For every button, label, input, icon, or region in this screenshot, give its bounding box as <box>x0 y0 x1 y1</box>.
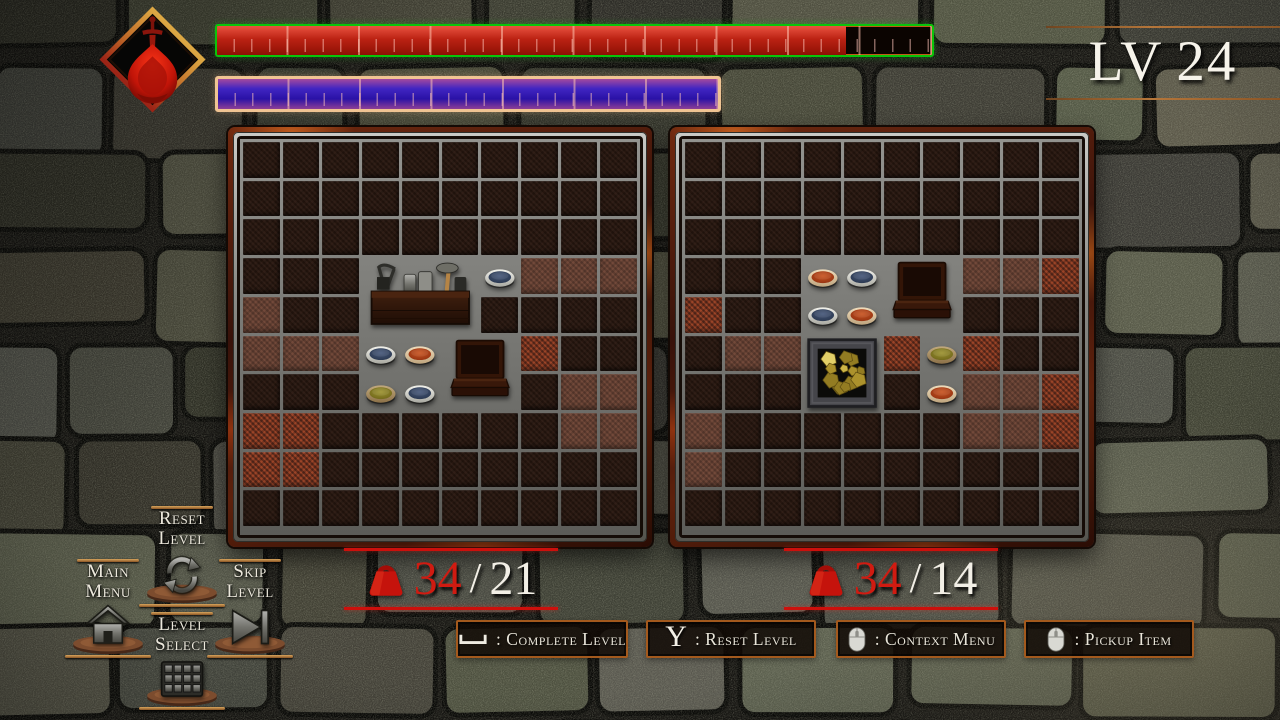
grid-cell[interactable] <box>283 374 320 410</box>
grid-cell[interactable] <box>804 142 841 178</box>
grid-cell[interactable] <box>685 142 722 178</box>
grid-cell[interactable] <box>1003 374 1040 410</box>
grid-cell[interactable] <box>923 452 960 488</box>
grid-cell[interactable] <box>725 181 762 217</box>
grid-cell[interactable] <box>844 142 881 178</box>
spacebar-icon <box>458 631 488 647</box>
grid-cell[interactable] <box>283 181 320 217</box>
item-chest[interactable] <box>442 336 518 410</box>
grid-cell[interactable] <box>283 258 320 294</box>
grid-cell[interactable] <box>481 297 518 333</box>
skip-level-label: Level <box>226 582 273 602</box>
grid-cell[interactable] <box>685 219 722 255</box>
grid-cell[interactable] <box>1003 452 1040 488</box>
grid-cell[interactable] <box>804 181 841 217</box>
grid-cell[interactable] <box>362 490 399 526</box>
grid-cell[interactable] <box>600 142 637 178</box>
health-bar <box>215 24 934 57</box>
grid-cell[interactable] <box>442 181 479 217</box>
level-select-button[interactable]: Level Select <box>130 612 234 710</box>
grid-cell[interactable] <box>804 219 841 255</box>
grid-cell[interactable] <box>521 297 558 333</box>
grid-cell[interactable] <box>521 452 558 488</box>
divider-line <box>784 548 998 551</box>
grid-cell[interactable] <box>283 413 320 449</box>
grid-cell[interactable] <box>521 181 558 217</box>
grid-cell[interactable] <box>600 413 637 449</box>
grid-cell[interactable] <box>963 297 1000 333</box>
grid-cell[interactable] <box>1042 258 1079 294</box>
grid-cell[interactable] <box>600 219 637 255</box>
grid-cell[interactable] <box>963 258 1000 294</box>
grid-cell[interactable] <box>561 374 598 410</box>
grid-cell[interactable] <box>521 413 558 449</box>
grid-cell[interactable] <box>1042 452 1079 488</box>
grid-cell[interactable] <box>923 142 960 178</box>
grid-cell[interactable] <box>725 258 762 294</box>
grid-cell[interactable] <box>402 490 439 526</box>
grid-cell[interactable] <box>402 452 439 488</box>
grid-cell[interactable] <box>1003 490 1040 526</box>
grid-cell[interactable] <box>561 490 598 526</box>
grid-cell[interactable] <box>1003 258 1040 294</box>
grid-cell[interactable] <box>362 181 399 217</box>
xp-bar <box>215 76 721 112</box>
grid-cell[interactable] <box>600 336 637 372</box>
grid-cell[interactable] <box>283 219 320 255</box>
grid-cell[interactable] <box>600 374 637 410</box>
grid-cell[interactable] <box>764 219 801 255</box>
grid-cell[interactable] <box>804 452 841 488</box>
weight-separator: / <box>910 557 922 601</box>
grid-cell[interactable] <box>884 374 921 410</box>
grid-cell[interactable] <box>923 413 960 449</box>
game-screen: LV24 <box>0 0 1280 720</box>
grid-cell[interactable] <box>844 219 881 255</box>
grid-cell[interactable] <box>481 219 518 255</box>
grid-cell[interactable] <box>243 336 280 372</box>
item-bowl-blue[interactable] <box>481 258 518 294</box>
grid-cell[interactable] <box>963 490 1000 526</box>
grid-cell[interactable] <box>600 258 637 294</box>
mouse-icon <box>1046 626 1066 653</box>
grid-cell[interactable] <box>884 142 921 178</box>
grid-cell[interactable] <box>561 219 598 255</box>
hint-label: : Complete Level <box>496 629 626 650</box>
item-bowl-red[interactable] <box>804 258 841 294</box>
grid-cell[interactable] <box>402 219 439 255</box>
grid-cell[interactable] <box>600 490 637 526</box>
puzzle-board-left <box>228 127 652 547</box>
grid-cell[interactable] <box>243 374 280 410</box>
grid-cell[interactable] <box>884 181 921 217</box>
grid-cell[interactable] <box>322 258 359 294</box>
grid-cell[interactable] <box>685 336 722 372</box>
grid-cell[interactable] <box>521 336 558 372</box>
grid-cell[interactable] <box>561 258 598 294</box>
grid-cell[interactable] <box>1042 413 1079 449</box>
grid-cell[interactable] <box>1003 297 1040 333</box>
grid-cell[interactable] <box>764 142 801 178</box>
grid-cell[interactable] <box>764 413 801 449</box>
grid-cell[interactable] <box>283 336 320 372</box>
grid-cell[interactable] <box>322 181 359 217</box>
grid-cell[interactable] <box>442 452 479 488</box>
grid-cell[interactable] <box>963 142 1000 178</box>
grid-cell[interactable] <box>322 297 359 333</box>
grid-cell[interactable] <box>764 297 801 333</box>
grid-cell[interactable] <box>685 413 722 449</box>
skip-icon <box>229 608 271 646</box>
grid-cell[interactable] <box>1042 297 1079 333</box>
mouse-icon <box>847 626 867 653</box>
level-select-label: Select <box>155 635 209 655</box>
grid-cell[interactable] <box>1003 336 1040 372</box>
grid-cell[interactable] <box>1042 490 1079 526</box>
weight-capacity: 21 <box>489 555 537 603</box>
item-bowl-olive[interactable] <box>923 336 960 372</box>
grid-cell[interactable] <box>804 490 841 526</box>
grid-cell[interactable] <box>402 413 439 449</box>
hint-reset-level[interactable]: Y : Reset Level <box>646 620 816 658</box>
grid-cell[interactable] <box>481 490 518 526</box>
grid-cell[interactable] <box>764 490 801 526</box>
grid-cell[interactable] <box>481 181 518 217</box>
grid-cell[interactable] <box>963 336 1000 372</box>
grid-cell[interactable] <box>283 297 320 333</box>
grid-cell[interactable] <box>322 142 359 178</box>
grid-cell[interactable] <box>884 336 921 372</box>
grid-cell[interactable] <box>243 413 280 449</box>
item-toolbox[interactable] <box>362 258 478 332</box>
grid-cell[interactable] <box>685 490 722 526</box>
grid-icon <box>160 660 204 698</box>
grid-cell[interactable] <box>600 452 637 488</box>
grid-cell[interactable] <box>442 142 479 178</box>
grid-cell[interactable] <box>481 452 518 488</box>
grid-cell[interactable] <box>884 490 921 526</box>
grid-cell[interactable] <box>725 297 762 333</box>
hint-label: : Reset Level <box>695 629 797 650</box>
grid-cell[interactable] <box>561 142 598 178</box>
grid-cell[interactable] <box>243 258 280 294</box>
grid-cell[interactable] <box>243 452 280 488</box>
grid-cell[interactable] <box>764 181 801 217</box>
grid-cell[interactable] <box>481 142 518 178</box>
grid-cell[interactable] <box>1042 142 1079 178</box>
divider-line <box>139 707 225 710</box>
grid-cell[interactable] <box>362 219 399 255</box>
grid-cell[interactable] <box>362 452 399 488</box>
grid-cell[interactable] <box>481 413 518 449</box>
weight-current: 34 <box>854 555 902 603</box>
grid-cell[interactable] <box>764 374 801 410</box>
reset-level-label: Level <box>158 529 205 549</box>
grid-cell[interactable] <box>725 374 762 410</box>
grid-cell[interactable] <box>283 142 320 178</box>
grid-cell[interactable] <box>561 336 598 372</box>
level-value: 24 <box>1176 30 1237 93</box>
grid-cell[interactable] <box>685 452 722 488</box>
grid-cell[interactable] <box>963 181 1000 217</box>
item-chest[interactable] <box>884 258 960 332</box>
grid-cell[interactable] <box>963 219 1000 255</box>
grid-cell[interactable] <box>685 258 722 294</box>
weight-counter-left: 34 / 21 <box>344 548 558 610</box>
board-grid <box>682 139 1082 535</box>
item-bowl-blue[interactable] <box>402 374 439 410</box>
grid-cell[interactable] <box>561 452 598 488</box>
grid-cell[interactable] <box>1042 181 1079 217</box>
level-label: LV <box>1089 30 1164 93</box>
level-select-label: Level <box>155 615 209 635</box>
grid-cell[interactable] <box>923 181 960 217</box>
grid-cell[interactable] <box>243 142 280 178</box>
grid-cell[interactable] <box>402 142 439 178</box>
grid-cell[interactable] <box>804 413 841 449</box>
main-menu-label: Main <box>85 562 131 582</box>
grid-cell[interactable] <box>764 258 801 294</box>
grid-cell[interactable] <box>362 413 399 449</box>
item-bowl-blue[interactable] <box>844 258 881 294</box>
item-bowl-red[interactable] <box>844 297 881 333</box>
hint-pickup-item[interactable]: : Pickup Item <box>1024 620 1194 658</box>
divider-line <box>1046 26 1280 28</box>
grid-cell[interactable] <box>322 413 359 449</box>
item-bowl-red[interactable] <box>923 374 960 410</box>
grid-cell[interactable] <box>521 219 558 255</box>
grid-cell[interactable] <box>685 374 722 410</box>
skip-level-label: Skip <box>226 562 273 582</box>
grid-cell[interactable] <box>884 413 921 449</box>
hint-label: : Context Menu <box>875 629 996 650</box>
grid-cell[interactable] <box>243 219 280 255</box>
grid-cell[interactable] <box>725 413 762 449</box>
weight-separator: / <box>470 557 482 601</box>
main-menu-label: Menu <box>85 582 131 602</box>
weight-counter-right: 34 / 14 <box>784 548 998 610</box>
grid-cell[interactable] <box>844 452 881 488</box>
puzzle-board-right <box>670 127 1094 547</box>
grid-cell[interactable] <box>844 413 881 449</box>
grid-cell[interactable] <box>725 142 762 178</box>
board-grid <box>240 139 640 535</box>
divider-line <box>344 548 558 551</box>
grid-cell[interactable] <box>322 374 359 410</box>
grid-cell[interactable] <box>521 374 558 410</box>
grid-cell[interactable] <box>884 452 921 488</box>
grid-cell[interactable] <box>725 336 762 372</box>
grid-cell[interactable] <box>561 181 598 217</box>
weight-icon <box>365 558 407 600</box>
weight-icon <box>805 558 847 600</box>
grid-cell[interactable] <box>844 181 881 217</box>
health-bar-major-ticks <box>217 26 932 55</box>
xp-bar-major-ticks <box>218 79 718 109</box>
grid-cell[interactable] <box>442 219 479 255</box>
grid-cell[interactable] <box>1003 142 1040 178</box>
grid-cell[interactable] <box>685 181 722 217</box>
item-bowl-blue[interactable] <box>804 297 841 333</box>
grid-cell[interactable] <box>322 490 359 526</box>
weight-capacity: 14 <box>929 555 977 603</box>
item-bowl-olive[interactable] <box>362 374 399 410</box>
home-icon <box>85 604 131 646</box>
grid-cell[interactable] <box>561 297 598 333</box>
y-key: Y <box>665 620 687 654</box>
item-bowl-red[interactable] <box>402 336 439 372</box>
grid-cell[interactable] <box>725 452 762 488</box>
item-ore-crate[interactable] <box>804 336 880 410</box>
grid-cell[interactable] <box>362 142 399 178</box>
grid-cell[interactable] <box>243 181 280 217</box>
grid-cell[interactable] <box>1003 219 1040 255</box>
grid-cell[interactable] <box>322 452 359 488</box>
grid-cell[interactable] <box>283 490 320 526</box>
grid-cell[interactable] <box>442 413 479 449</box>
grid-cell[interactable] <box>963 413 1000 449</box>
grid-cell[interactable] <box>1003 181 1040 217</box>
grid-cell[interactable] <box>844 490 881 526</box>
grid-cell[interactable] <box>600 297 637 333</box>
grid-cell[interactable] <box>764 336 801 372</box>
hint-context-menu[interactable]: : Context Menu <box>836 620 1006 658</box>
item-bowl-blue[interactable] <box>362 336 399 372</box>
grid-cell[interactable] <box>243 490 280 526</box>
hint-label: : Pickup Item <box>1074 629 1171 650</box>
grid-cell[interactable] <box>283 452 320 488</box>
grid-cell[interactable] <box>685 297 722 333</box>
grid-cell[interactable] <box>1042 374 1079 410</box>
weight-current: 34 <box>414 555 462 603</box>
bonfire-sword-emblem <box>96 3 209 116</box>
grid-cell[interactable] <box>764 452 801 488</box>
grid-cell[interactable] <box>725 490 762 526</box>
grid-cell[interactable] <box>521 490 558 526</box>
grid-cell[interactable] <box>322 219 359 255</box>
grid-cell[interactable] <box>884 219 921 255</box>
divider-line <box>1046 98 1280 100</box>
reset-icon <box>162 555 202 595</box>
grid-cell[interactable] <box>322 336 359 372</box>
divider-line <box>784 607 998 610</box>
grid-cell[interactable] <box>600 181 637 217</box>
grid-cell[interactable] <box>521 258 558 294</box>
grid-cell[interactable] <box>1003 413 1040 449</box>
grid-cell[interactable] <box>1042 219 1079 255</box>
reset-level-label: Reset <box>158 509 205 529</box>
grid-cell[interactable] <box>963 374 1000 410</box>
grid-cell[interactable] <box>923 490 960 526</box>
grid-cell[interactable] <box>243 297 280 333</box>
grid-cell[interactable] <box>561 413 598 449</box>
divider-line <box>344 607 558 610</box>
grid-cell[interactable] <box>923 219 960 255</box>
grid-cell[interactable] <box>725 219 762 255</box>
grid-cell[interactable] <box>963 452 1000 488</box>
hint-complete-level[interactable]: : Complete Level <box>456 620 628 658</box>
grid-cell[interactable] <box>402 181 439 217</box>
grid-cell[interactable] <box>442 490 479 526</box>
level-indicator: LV24 <box>1046 26 1280 100</box>
grid-cell[interactable] <box>1042 336 1079 372</box>
grid-cell[interactable] <box>521 142 558 178</box>
